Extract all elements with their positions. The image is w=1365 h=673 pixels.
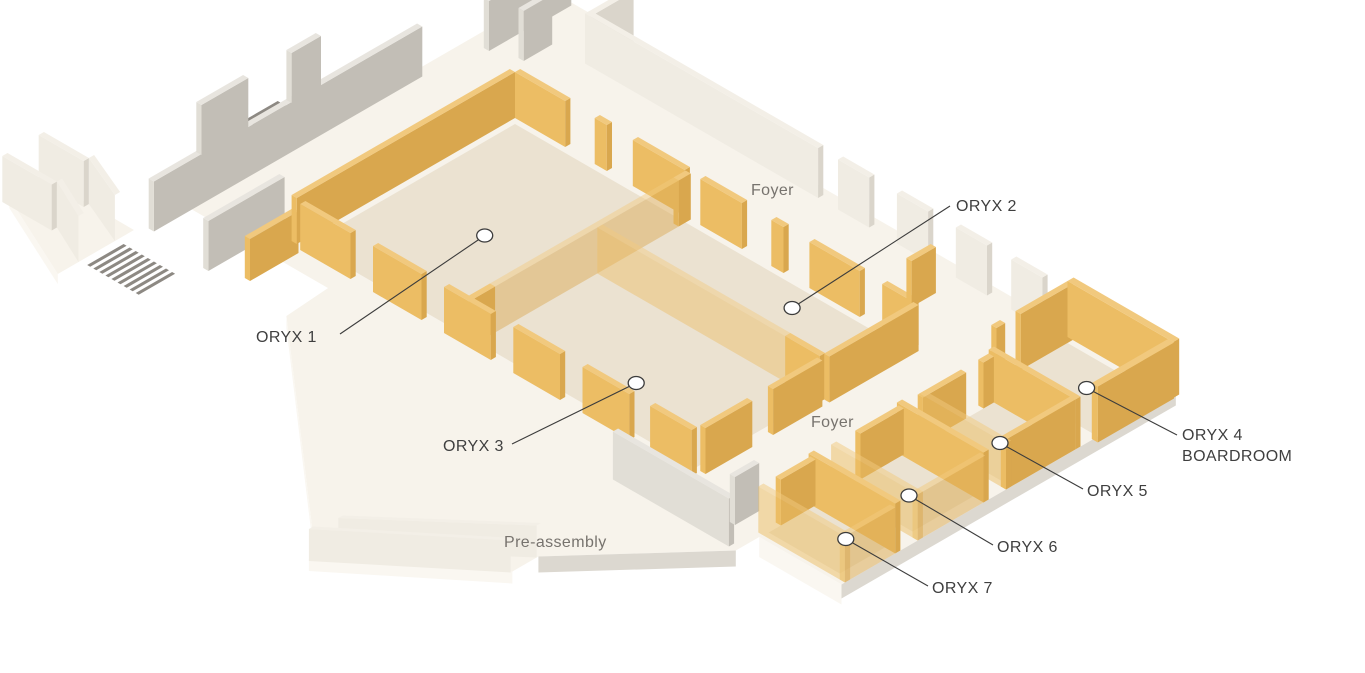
room-label-oryx-6[interactable]: ORYX 6 xyxy=(997,537,1058,558)
callout-marker-oryx-4[interactable] xyxy=(1079,382,1095,395)
floorplan-svg xyxy=(0,0,1365,673)
corridor-wall xyxy=(203,218,208,271)
partition-wall xyxy=(491,311,496,360)
partition-wall xyxy=(918,492,923,541)
venue-floorplan: ORYX 1 ORYX 2 ORYX 3 ORYX 4 BOARDROOM OR… xyxy=(0,0,1365,673)
exterior-wall xyxy=(987,243,992,296)
partition-wall xyxy=(1173,339,1179,399)
partition-wall xyxy=(679,174,691,227)
partition-wall xyxy=(784,224,789,273)
exterior-wall xyxy=(869,175,874,228)
room-label-oryx-5[interactable]: ORYX 5 xyxy=(1087,481,1148,502)
exterior-wall xyxy=(84,158,89,207)
exterior-wall xyxy=(818,145,823,198)
partition-wall xyxy=(629,391,634,440)
partition-wall xyxy=(768,386,773,435)
callout-marker-oryx-7[interactable] xyxy=(838,533,854,546)
partition-wall xyxy=(692,427,697,476)
room-label-oryx-4-sublabel: BOARDROOM xyxy=(1182,446,1292,467)
room-label-oryx-7[interactable]: ORYX 7 xyxy=(932,578,993,599)
partition-wall xyxy=(565,98,570,147)
floorplan-canvas xyxy=(0,0,1365,673)
callout-marker-oryx-2[interactable] xyxy=(784,302,800,315)
room-label-oryx-3[interactable]: ORYX 3 xyxy=(443,436,504,457)
partition-wall xyxy=(860,268,865,317)
corridor-wall xyxy=(484,0,489,51)
partition-wall xyxy=(895,501,900,554)
partition-wall xyxy=(292,195,297,244)
partition-wall xyxy=(560,351,565,400)
partition-wall xyxy=(742,200,747,249)
partition-wall xyxy=(824,354,829,403)
corridor-wall xyxy=(519,8,524,61)
partition-wall xyxy=(771,220,783,273)
corridor-wall xyxy=(730,474,735,525)
area-label-pre-assembly: Pre-assembly xyxy=(504,532,607,553)
partition-wall xyxy=(984,357,994,409)
room-label-oryx-4-name: ORYX 4 xyxy=(1182,425,1292,446)
room-label-oryx-2[interactable]: ORYX 2 xyxy=(956,196,1017,217)
exterior-wall xyxy=(52,182,57,231)
partition-wall xyxy=(978,360,983,409)
partition-wall xyxy=(1075,397,1080,450)
partition-wall xyxy=(595,118,607,171)
callout-marker-oryx-1[interactable] xyxy=(477,229,493,242)
callout-marker-oryx-3[interactable] xyxy=(628,377,644,390)
corridor-wall xyxy=(196,102,201,155)
area-label-foyer-north: Foyer xyxy=(751,180,794,201)
partition-wall xyxy=(906,258,911,307)
corridor-wall xyxy=(286,50,291,103)
callout-marker-oryx-6[interactable] xyxy=(901,489,917,502)
corridor-wall xyxy=(149,179,154,232)
partition-wall xyxy=(351,230,356,279)
area-label-foyer-east: Foyer xyxy=(811,412,854,433)
partition-wall xyxy=(245,236,250,281)
room-label-oryx-1[interactable]: ORYX 1 xyxy=(256,327,317,348)
room-label-oryx-4[interactable]: ORYX 4 BOARDROOM xyxy=(1182,425,1292,467)
partition-wall xyxy=(607,122,612,171)
callout-marker-oryx-5[interactable] xyxy=(992,437,1008,450)
partition-wall xyxy=(700,425,705,474)
